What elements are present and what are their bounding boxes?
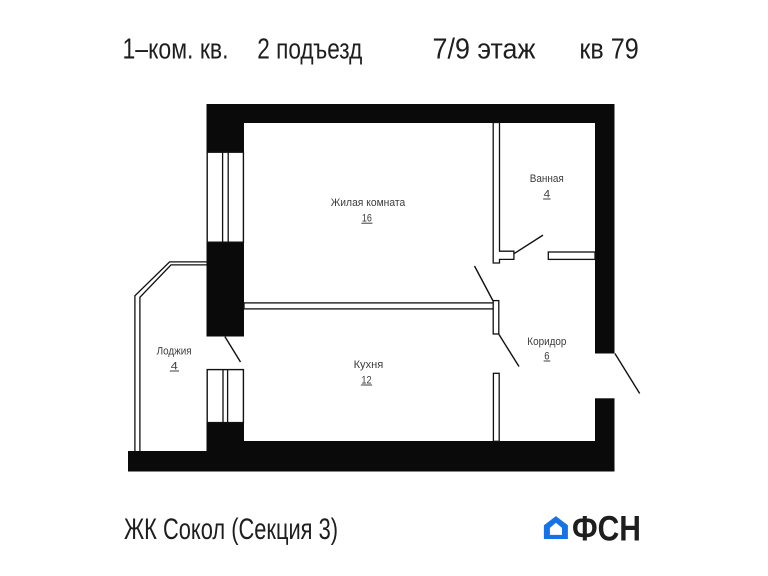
svg-text:Лоджия: Лоджия [157, 345, 192, 357]
svg-text:2 подъезд: 2 подъезд [257, 33, 362, 65]
svg-text:кв 79: кв 79 [579, 33, 638, 65]
svg-text:Ванная: Ванная [530, 173, 564, 185]
svg-text:Коридор: Коридор [527, 336, 566, 348]
svg-text:ФСН: ФСН [572, 508, 641, 548]
svg-text:ЖК Сокол (Секция 3): ЖК Сокол (Секция 3) [124, 513, 338, 546]
svg-text:7/9 этаж: 7/9 этаж [433, 33, 537, 65]
svg-text:1–ком. кв.: 1–ком. кв. [123, 33, 229, 65]
svg-text:Жилая комната: Жилая комната [331, 197, 406, 209]
svg-text:Кухня: Кухня [354, 359, 384, 371]
